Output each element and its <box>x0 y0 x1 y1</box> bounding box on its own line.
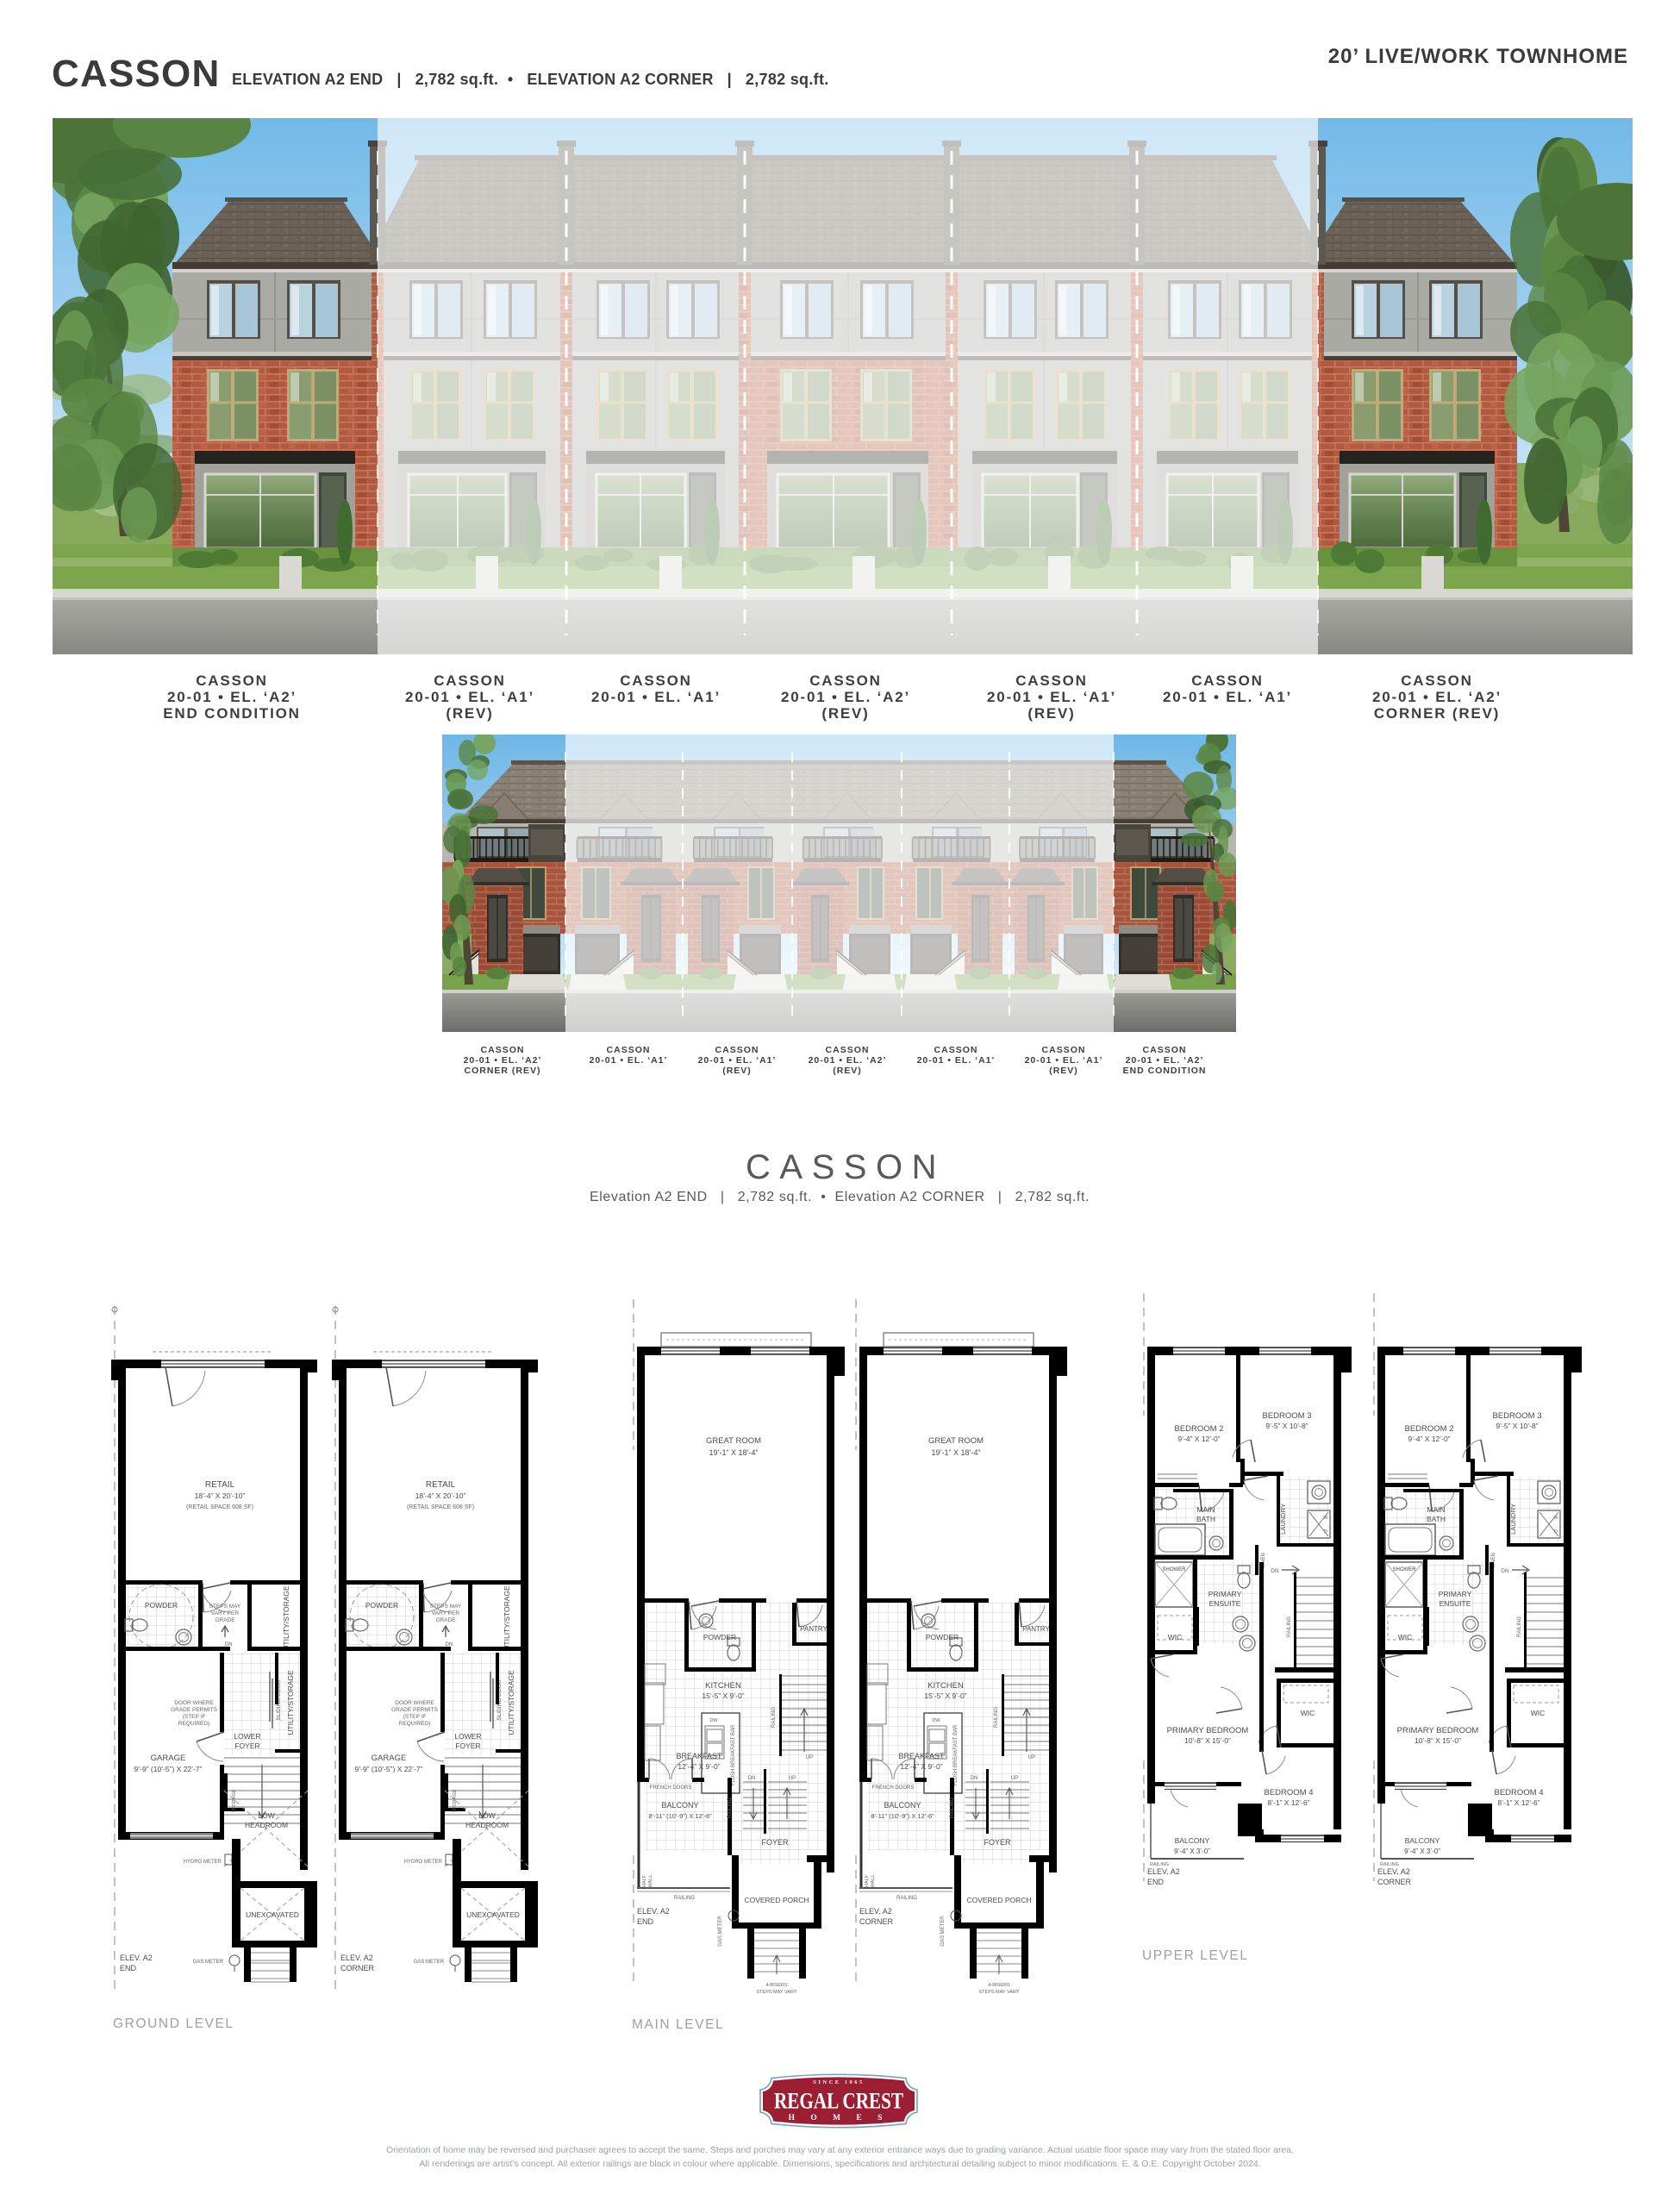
svg-text:LOW: LOW <box>258 1811 274 1820</box>
svg-text:(STEP IF: (STEP IF <box>183 1714 206 1720</box>
svg-text:(STEP IF: (STEP IF <box>403 1714 427 1720</box>
svg-text:(RETAIL SPACE 608 SF): (RETAIL SPACE 608 SF) <box>186 1504 253 1510</box>
svg-text:ELEV. A2: ELEV. A2 <box>120 1954 153 1962</box>
svg-text:HYDRO METER: HYDRO METER <box>184 1860 222 1865</box>
svg-text:ELEV. A2: ELEV. A2 <box>1147 1867 1180 1876</box>
svg-text:GRADE PERMITS: GRADE PERMITS <box>391 1707 438 1713</box>
svg-text:18’-4” X 20’-10”: 18’-4” X 20’-10” <box>195 1491 246 1500</box>
svg-text:HEADROOM: HEADROOM <box>465 1821 509 1829</box>
svg-text:WIC: WIC <box>1531 1709 1546 1717</box>
svg-text:SHOWER: SHOWER <box>1163 1567 1187 1572</box>
svg-text:UP: UP <box>1028 1755 1035 1760</box>
svg-text:ENSUITE: ENSUITE <box>1209 1599 1241 1608</box>
svg-text:FRENCH DOORS: FRENCH DOORS <box>650 1785 692 1791</box>
svg-text:KITCHEN: KITCHEN <box>927 1681 964 1691</box>
svg-text:PANTRY: PANTRY <box>1022 1625 1050 1633</box>
svg-text:POWDER: POWDER <box>365 1601 398 1610</box>
svg-text:8’-1” X 12’-6”: 8’-1” X 12’-6” <box>1267 1798 1309 1807</box>
svg-text:PRIMARY BEDROOM: PRIMARY BEDROOM <box>1167 1726 1249 1735</box>
svg-text:UP: UP <box>789 1776 796 1781</box>
svg-text:H O M E S: H O M E S <box>789 2114 890 2123</box>
svg-text:POWDER: POWDER <box>926 1633 959 1641</box>
svg-text:RAILING: RAILING <box>1287 1616 1292 1637</box>
svg-text:ELEV. A2: ELEV. A2 <box>1377 1867 1410 1876</box>
svg-text:12’-4” X 9’-0”: 12’-4” X 9’-0” <box>678 1762 720 1771</box>
svg-text:FOYER: FOYER <box>984 1838 1011 1847</box>
svg-text:RAILING: RAILING <box>1517 1616 1522 1637</box>
svg-text:RAILING: RAILING <box>728 1797 733 1818</box>
svg-text:PANTRY: PANTRY <box>800 1625 828 1633</box>
svg-text:HEADROOM: HEADROOM <box>245 1821 288 1829</box>
svg-text:DW: DW <box>709 1718 718 1723</box>
svg-text:DN: DN <box>1271 1568 1279 1574</box>
svg-text:GREAT ROOM: GREAT ROOM <box>928 1436 984 1446</box>
svg-text:DOOR WHERE: DOOR WHERE <box>174 1700 214 1706</box>
svg-text:10’-8” X 15’-0”: 10’-8” X 15’-0” <box>1415 1736 1461 1745</box>
svg-text:END: END <box>1147 1878 1165 1886</box>
svg-text:(RETAIL SPACE 608 SF): (RETAIL SPACE 608 SF) <box>407 1504 474 1510</box>
svg-text:BATH: BATH <box>1196 1515 1215 1523</box>
svg-text:GARAGE: GARAGE <box>151 1754 186 1763</box>
svg-text:RAILING: RAILING <box>994 1707 999 1728</box>
svg-text:FOYER: FOYER <box>455 1741 480 1750</box>
svg-text:RETAIL: RETAIL <box>426 1480 456 1490</box>
svg-text:D: D <box>1554 1529 1558 1535</box>
svg-text:19’-1” X 18’-4”: 19’-1” X 18’-4” <box>709 1448 758 1457</box>
svg-text:LAUNDRY: LAUNDRY <box>1509 1504 1517 1535</box>
svg-text:POWDER: POWDER <box>703 1633 736 1641</box>
svg-text:VARY PER: VARY PER <box>211 1610 239 1616</box>
svg-text:DW: DW <box>932 1718 940 1723</box>
svg-text:DOOR WHERE: DOOR WHERE <box>395 1700 434 1706</box>
svg-text:9’-5” X 10’-8”: 9’-5” X 10’-8” <box>1496 1422 1538 1430</box>
svg-text:UP: UP <box>806 1755 813 1760</box>
svg-text:WALL: WALL <box>648 1875 653 1888</box>
svg-text:UTILITY/STORAGE: UTILITY/STORAGE <box>507 1670 515 1735</box>
svg-text:HALF: HALF <box>865 1874 870 1887</box>
svg-text:STORAGE: STORAGE <box>453 1789 458 1812</box>
svg-text:BREAKFAST: BREAKFAST <box>676 1752 722 1760</box>
svg-text:DN: DN <box>748 1776 756 1781</box>
svg-text:BEDROOM 3: BEDROOM 3 <box>1492 1411 1541 1421</box>
svg-text:GARAGE: GARAGE <box>372 1754 407 1763</box>
svg-text:FLUSH BREAKFAST BAR: FLUSH BREAKFAST BAR <box>731 1724 736 1785</box>
svg-text:UNEXCAVATED: UNEXCAVATED <box>246 1910 299 1919</box>
svg-text:ELEV. A2: ELEV. A2 <box>859 1907 892 1916</box>
svg-text:8’-11” (10’-9”) X 12’-6”: 8’-11” (10’-9”) X 12’-6” <box>648 1812 712 1820</box>
svg-text:W: W <box>1323 1516 1328 1521</box>
svg-text:RETAIL: RETAIL <box>205 1480 235 1490</box>
svg-text:GAS METER: GAS METER <box>193 1960 224 1965</box>
svg-text:10’-8” X 15’-0”: 10’-8” X 15’-0” <box>1184 1736 1231 1745</box>
svg-text:UNEXCAVATED: UNEXCAVATED <box>466 1910 520 1919</box>
svg-text:15’-5” X 9’-0”: 15’-5” X 9’-0” <box>924 1691 966 1700</box>
svg-text:STORAGE: STORAGE <box>232 1789 237 1812</box>
svg-text:GAS METER: GAS METER <box>414 1960 445 1965</box>
svg-text:DN: DN <box>1501 1568 1509 1574</box>
svg-text:9’-5” X 10’-8”: 9’-5” X 10’-8” <box>1265 1422 1308 1430</box>
svg-text:MAIN: MAIN <box>1196 1505 1215 1514</box>
svg-text:BATH: BATH <box>1427 1515 1446 1523</box>
svg-text:GRADE: GRADE <box>435 1617 456 1623</box>
svg-text:ELEV. A2: ELEV. A2 <box>637 1907 670 1916</box>
svg-text:STEPS MAY: STEPS MAY <box>209 1604 241 1610</box>
svg-text:CORNER: CORNER <box>340 1964 375 1973</box>
svg-text:RAILING: RAILING <box>674 1896 695 1901</box>
svg-text:8’-11” (10’-9”) X 12’-6”: 8’-11” (10’-9”) X 12’-6” <box>871 1812 934 1820</box>
svg-text:9’-9” (10’-5”) X 22’-7”: 9’-9” (10’-5”) X 22’-7” <box>355 1765 423 1773</box>
svg-text:COVERED PORCH: COVERED PORCH <box>744 1896 809 1904</box>
svg-text:8’-1” X 12’-6”: 8’-1” X 12’-6” <box>1497 1798 1539 1807</box>
svg-text:FRENCH DOORS: FRENCH DOORS <box>872 1785 915 1791</box>
svg-text:MAIN: MAIN <box>1427 1505 1445 1514</box>
svg-text:VARY PER: VARY PER <box>432 1610 459 1616</box>
svg-text:KITCHEN: KITCHEN <box>705 1681 741 1691</box>
svg-text:HYDRO METER: HYDRO METER <box>404 1860 443 1865</box>
svg-text:HALF: HALF <box>642 1874 647 1887</box>
svg-text:GAS METER: GAS METER <box>718 1916 723 1947</box>
svg-text:GREAT ROOM: GREAT ROOM <box>706 1436 761 1446</box>
svg-text:9’-4” X 3’-0”: 9’-4” X 3’-0” <box>1174 1848 1210 1855</box>
svg-text:LOWER: LOWER <box>454 1732 481 1741</box>
svg-text:DN: DN <box>225 1642 233 1647</box>
svg-text:15’-5” X 9’-0”: 15’-5” X 9’-0” <box>702 1691 744 1700</box>
svg-text:PRIMARY BEDROOM: PRIMARY BEDROOM <box>1397 1726 1479 1735</box>
svg-text:GAS METER: GAS METER <box>940 1916 946 1947</box>
svg-text:12’-4” X 9’-0”: 12’-4” X 9’-0” <box>900 1762 942 1771</box>
svg-text:W: W <box>1553 1516 1558 1521</box>
svg-text:RAILING: RAILING <box>771 1707 777 1728</box>
svg-text:BEDROOM 4: BEDROOM 4 <box>1494 1788 1543 1797</box>
svg-text:END: END <box>120 1964 137 1973</box>
svg-text:CORNER: CORNER <box>1377 1878 1412 1886</box>
svg-text:19’-1” X 18’-4”: 19’-1” X 18’-4” <box>931 1448 980 1457</box>
svg-text:BALCONY: BALCONY <box>661 1801 698 1810</box>
svg-text:D: D <box>1324 1529 1327 1535</box>
svg-text:WIC: WIC <box>1301 1709 1315 1717</box>
svg-text:UP: UP <box>1011 1776 1018 1781</box>
svg-text:LOWER: LOWER <box>234 1732 260 1741</box>
svg-text:9’-4” X 12’-0”: 9’-4” X 12’-0” <box>1408 1435 1450 1443</box>
svg-text:REQUIRED): REQUIRED) <box>178 1721 209 1727</box>
svg-text:PRIMARY: PRIMARY <box>1439 1590 1472 1598</box>
svg-text:DN: DN <box>971 1776 978 1781</box>
svg-text:RAILING: RAILING <box>896 1896 917 1901</box>
svg-text:STEPS MAY VARY: STEPS MAY VARY <box>757 1990 797 1995</box>
svg-text:FOYER: FOYER <box>234 1741 259 1750</box>
svg-text:REQUIRED): REQUIRED) <box>399 1721 430 1727</box>
svg-text:BALCONY: BALCONY <box>884 1801 921 1810</box>
svg-text:BALCONY: BALCONY <box>1405 1836 1440 1845</box>
svg-text:REGAL CREST: REGAL CREST <box>774 2089 903 2114</box>
svg-text:4-RISERS: 4-RISERS <box>765 1983 788 1988</box>
svg-text:PRIMARY: PRIMARY <box>1208 1590 1242 1598</box>
svg-text:POWDER: POWDER <box>145 1601 178 1610</box>
svg-text:COVERED PORCH: COVERED PORCH <box>966 1896 1031 1904</box>
svg-text:GRADE PERMITS: GRADE PERMITS <box>171 1707 217 1713</box>
svg-text:LAUNDRY: LAUNDRY <box>1279 1504 1287 1535</box>
svg-text:9’-4” X 12’-0”: 9’-4” X 12’-0” <box>1177 1435 1220 1443</box>
svg-text:BEDROOM 2: BEDROOM 2 <box>1404 1424 1453 1434</box>
svg-text:BALCONY: BALCONY <box>1175 1836 1210 1845</box>
svg-text:9’-9” (10’-5”) X 22’-7”: 9’-9” (10’-5”) X 22’-7” <box>134 1765 203 1773</box>
svg-text:BEDROOM 4: BEDROOM 4 <box>1264 1788 1313 1797</box>
svg-text:LOW: LOW <box>478 1811 495 1820</box>
svg-text:UTILITY/STORAGE: UTILITY/STORAGE <box>286 1670 295 1735</box>
svg-text:DN: DN <box>446 1642 453 1647</box>
svg-text:BREAKFAST: BREAKFAST <box>898 1752 945 1760</box>
svg-text:FOYER: FOYER <box>761 1838 789 1847</box>
svg-text:BEDROOM 3: BEDROOM 3 <box>1262 1411 1311 1421</box>
svg-text:STEPS MAY VARY: STEPS MAY VARY <box>979 1990 1020 1995</box>
svg-text:4-RISERS: 4-RISERS <box>988 1983 1010 1988</box>
svg-text:UTILITY/STORAGE: UTILITY/STORAGE <box>282 1585 290 1651</box>
svg-text:9’-4” X 3’-0”: 9’-4” X 3’-0” <box>1404 1848 1440 1855</box>
svg-text:ELEV. A2: ELEV. A2 <box>340 1954 373 1962</box>
svg-text:RAILING: RAILING <box>950 1797 955 1818</box>
svg-text:ENSUITE: ENSUITE <box>1440 1599 1471 1608</box>
svg-text:GRADE: GRADE <box>215 1617 235 1623</box>
svg-text:18’-4” X 20’-10”: 18’-4” X 20’-10” <box>415 1491 466 1500</box>
svg-text:WALL: WALL <box>871 1875 876 1888</box>
svg-text:STEPS MAY: STEPS MAY <box>430 1604 462 1610</box>
svg-text:SINCE 1965: SINCE 1965 <box>813 2079 865 2085</box>
svg-text:BEDROOM 2: BEDROOM 2 <box>1174 1424 1223 1434</box>
svg-text:SHOWER: SHOWER <box>1393 1567 1417 1572</box>
svg-text:END: END <box>637 1917 654 1926</box>
svg-text:UTILITY/STORAGE: UTILITY/STORAGE <box>503 1585 511 1651</box>
svg-text:FLUSH BREAKFAST BAR: FLUSH BREAKFAST BAR <box>953 1724 959 1785</box>
svg-text:CORNER: CORNER <box>859 1917 894 1926</box>
